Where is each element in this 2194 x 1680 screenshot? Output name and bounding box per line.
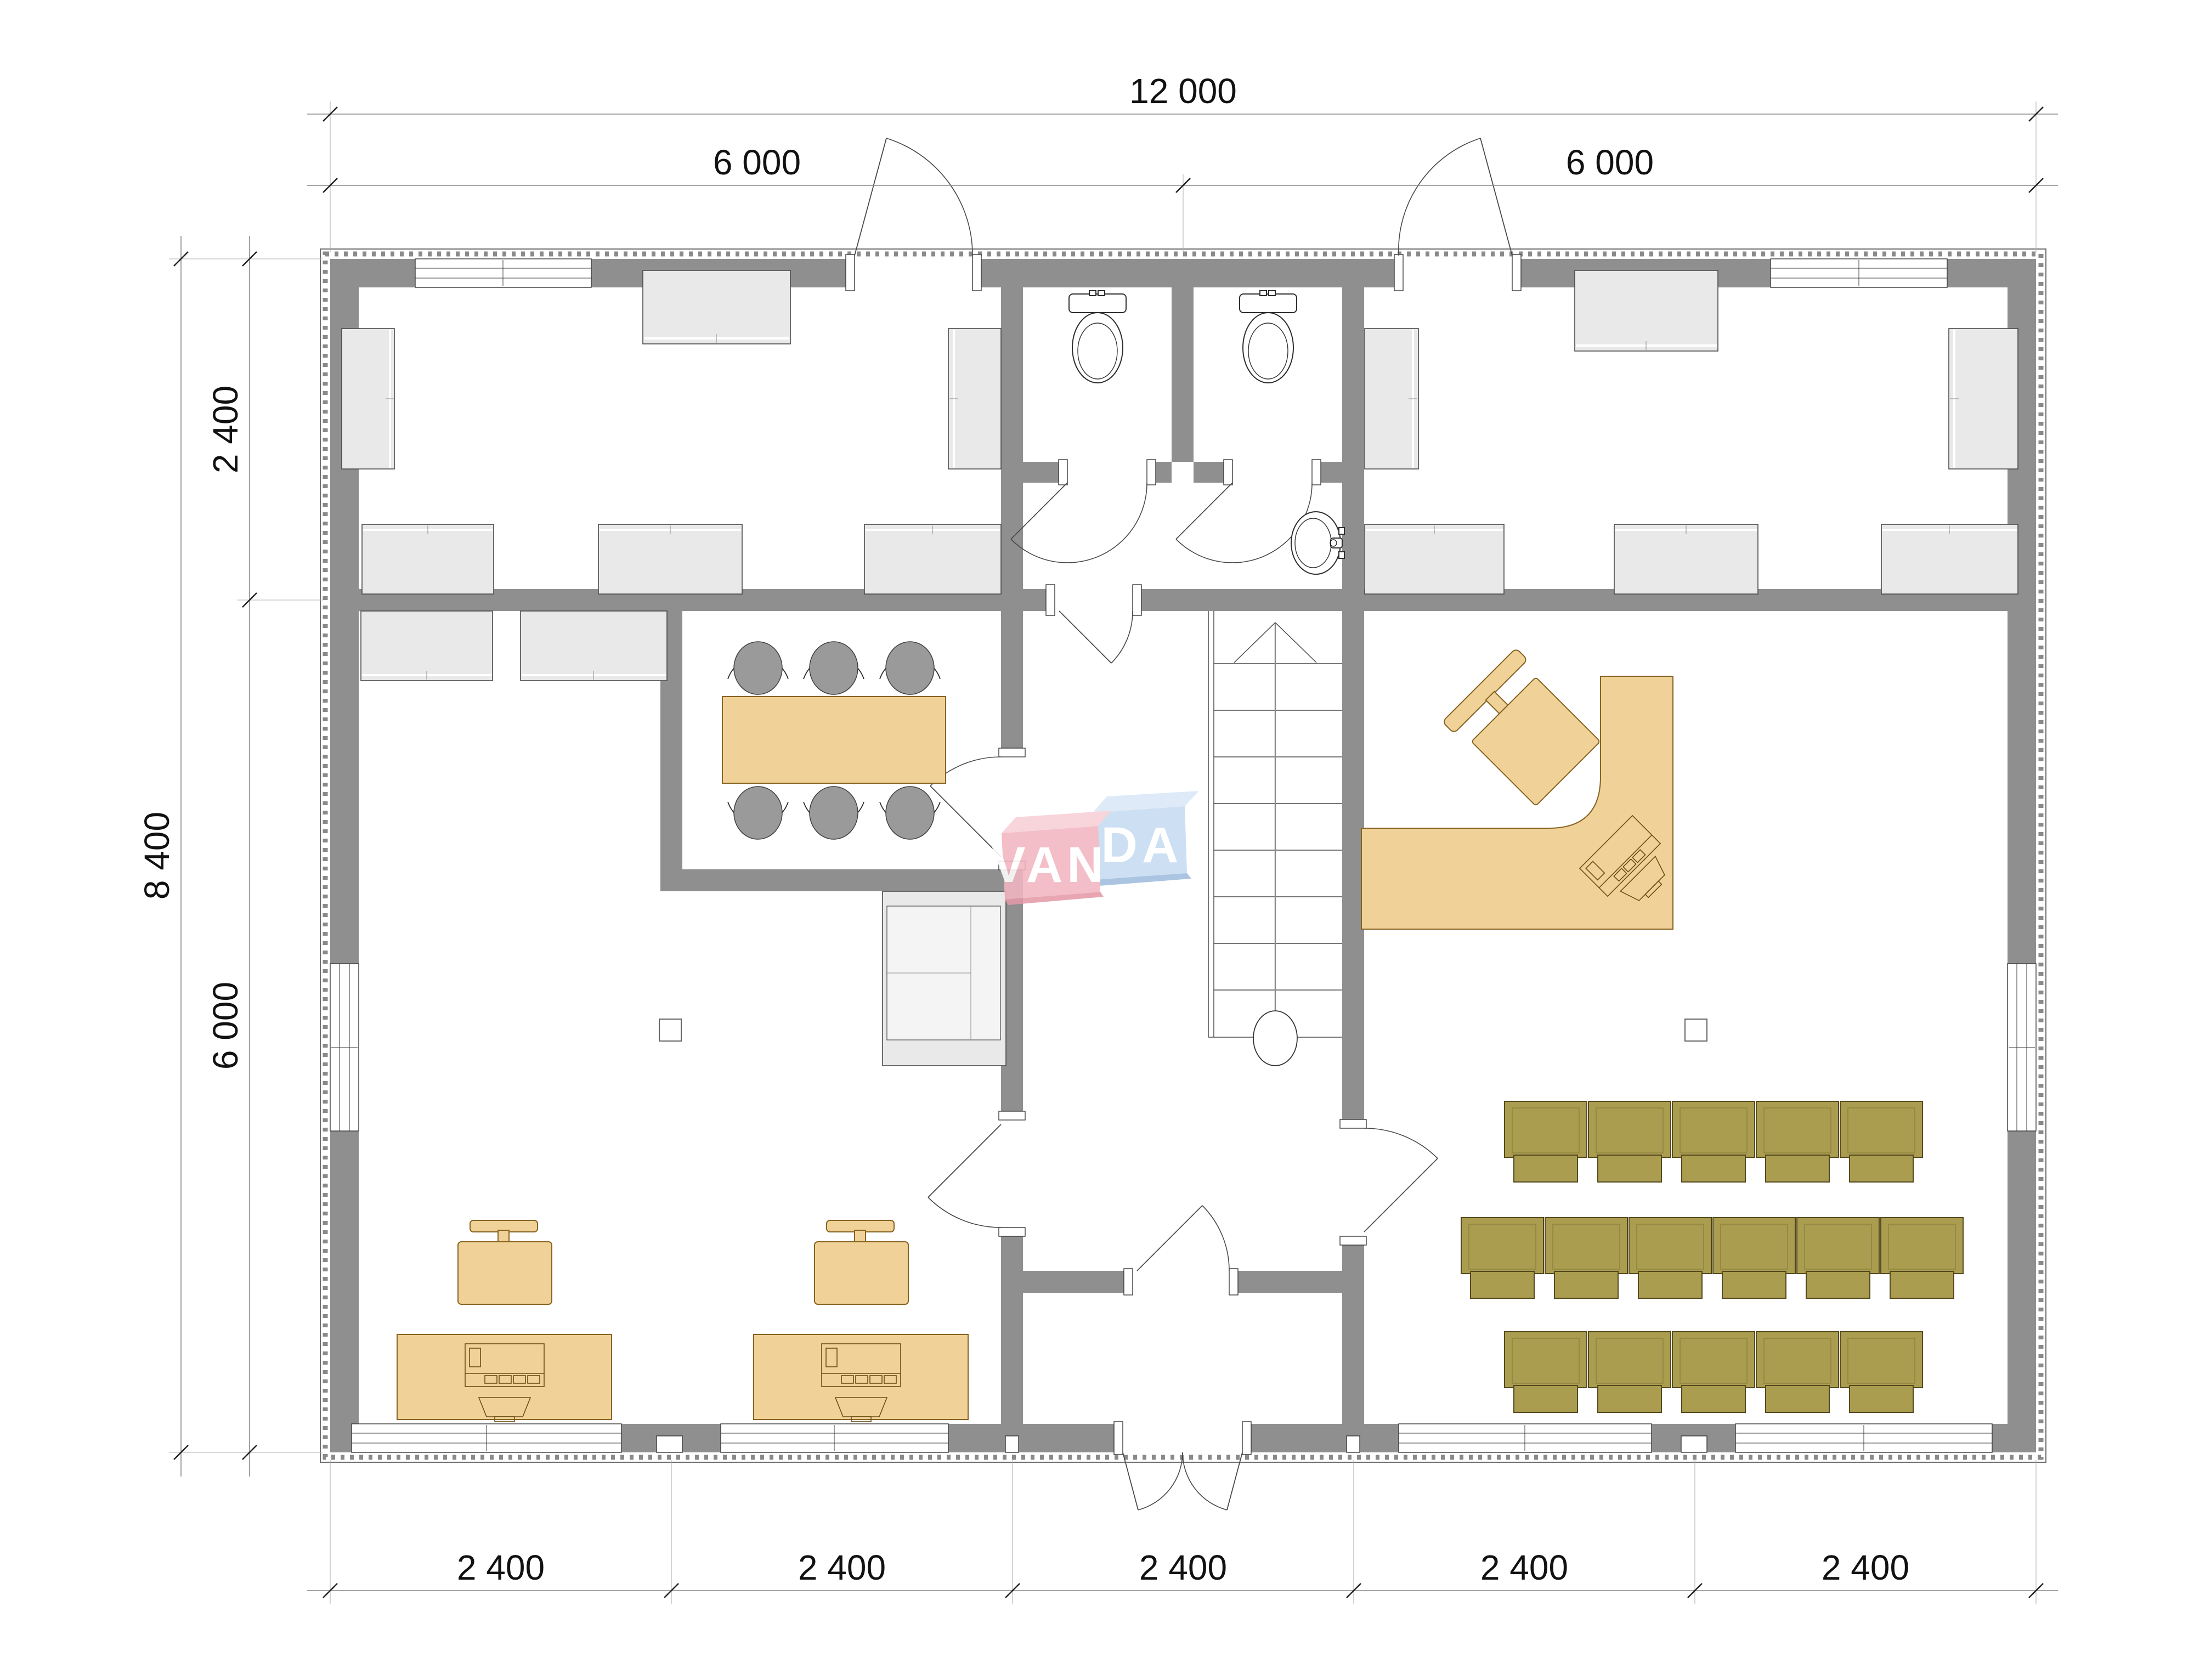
cabinet-tr-bottom-3: [1881, 524, 2018, 594]
workstations: [397, 1220, 968, 1422]
floor-plan-page: VAN DA 12 000 6 000 6 000: [0, 0, 2194, 1680]
wall-toilet-front-3: [1194, 462, 1228, 483]
theater-seat: [1505, 1332, 1587, 1412]
dimension-bottom-segments: 2 400 2 400 2 400 2 400 2 400: [307, 1548, 2058, 1598]
reception: [1361, 648, 1681, 929]
wall-vestibule-left: [1023, 1271, 1133, 1293]
floor-box-symbol-right: [1685, 1019, 1707, 1041]
seat-row-1: [1505, 1101, 1922, 1182]
stairs: [1208, 611, 1342, 1066]
theater-seat: [1672, 1101, 1755, 1182]
dim-label-6000-left: 6 000: [713, 143, 801, 182]
theater-seat: [1756, 1332, 1839, 1412]
dim-label-b2: 2 400: [798, 1548, 886, 1587]
theater-seat: [1797, 1218, 1879, 1298]
door-vestibule-inner: [1124, 1206, 1238, 1295]
meeting-table: [722, 697, 946, 783]
theater-seating: [1461, 1101, 1963, 1412]
watermark-text-right: DA: [1101, 817, 1183, 873]
cabinet-tr-rightwall: [1949, 329, 2018, 469]
toilet-icon-left: [1069, 291, 1126, 383]
theater-seat: [1629, 1218, 1711, 1298]
dim-label-b5: 2 400: [1822, 1548, 1909, 1587]
wall-hall-east-lower: [1342, 1236, 1364, 1424]
cabinet-tr-topwall: [1575, 270, 1718, 351]
sanitary-fixtures: [1069, 291, 1344, 574]
wall-toilet-east: [1342, 287, 1364, 589]
theater-seat: [1588, 1332, 1671, 1412]
window-left: [330, 964, 359, 1131]
meeting-chairs-top: [728, 642, 940, 694]
wall-toilet-middle: [1172, 287, 1194, 462]
floor-box-symbol-left: [659, 1019, 681, 1041]
theater-seat: [1756, 1101, 1839, 1182]
cabinet-tr-leftwall: [1365, 329, 1418, 469]
window-bottom-4: [1735, 1424, 1992, 1452]
floor-plan-drawing: VAN DA 12 000 6 000 6 000: [0, 0, 2194, 1680]
door-hall-to-right-room: [1340, 1119, 1438, 1245]
theater-seat: [1461, 1218, 1543, 1298]
theater-seat: [1505, 1101, 1587, 1182]
dimension-top-halves: 6 000 6 000: [307, 143, 2058, 193]
cabinet-tall-below-meeting: [883, 891, 1006, 1066]
dimension-left-total: 8 400: [137, 236, 188, 1477]
dim-label-b4: 2 400: [1480, 1548, 1568, 1587]
dim-label-2400-left: 2 400: [206, 386, 245, 473]
window-bottom-3: [1399, 1424, 1652, 1452]
door-opening-top-right: [1403, 259, 1512, 287]
desk-chair-seat: [458, 1242, 552, 1304]
cabinet-tl-topwall: [643, 270, 790, 344]
dim-label-6000-left-lower: 6 000: [206, 982, 245, 1070]
cabinet-tl-leftwall: [342, 329, 394, 469]
cabinet-tl-bottom-1: [362, 524, 494, 594]
dim-label-6000-right: 6 000: [1566, 143, 1654, 182]
window-top-right: [1771, 259, 1947, 287]
desk: [397, 1334, 612, 1419]
seat-row-2: [1461, 1218, 1963, 1298]
dimension-top-total: 12 000: [307, 71, 2058, 121]
wall-meeting-south: [660, 869, 1001, 891]
pier-notch-right: [1681, 1436, 1707, 1452]
theater-seat: [1545, 1218, 1627, 1298]
junction-notch-right: [1347, 1436, 1360, 1452]
theater-seat: [1840, 1101, 1922, 1182]
window-bottom-1: [352, 1424, 621, 1452]
workstation-1: [397, 1220, 612, 1422]
entrance-opening: [1123, 1424, 1242, 1452]
workstation-2: [754, 1220, 968, 1422]
watermark-text-left: VAN: [992, 837, 1107, 893]
theater-seat: [1588, 1101, 1671, 1182]
toilet-icon-right: [1240, 291, 1297, 383]
stair-direction-arrow: [1234, 623, 1275, 663]
pier-notch-left: [657, 1436, 682, 1452]
stair-newel: [1253, 1011, 1297, 1066]
sink-icon: [1291, 512, 1344, 574]
cabinet-tl-rightwall: [948, 329, 1001, 469]
seat-row-3: [1505, 1332, 1922, 1412]
wall-main-horizontal-right: [1133, 589, 2008, 611]
cabinet-ll-north-1: [361, 611, 493, 681]
cabinet-tl-bottom-3: [864, 524, 1001, 594]
cabinet-tl-bottom-2: [598, 524, 742, 594]
theater-seat: [1672, 1332, 1755, 1412]
wall-toilet-front-1: [1023, 462, 1063, 483]
window-bottom-2: [721, 1424, 948, 1452]
door-lobby-to-hall: [1046, 585, 1141, 663]
cabinet-tr-bottom-1: [1365, 524, 1504, 594]
wall-hall-west-lower: [1001, 1228, 1023, 1424]
meeting-chairs-bottom: [728, 787, 940, 839]
window-right: [2008, 964, 2036, 1131]
dim-label-8400: 8 400: [137, 812, 177, 900]
wall-hall-west-upper: [1001, 611, 1023, 757]
dim-label-b1: 2 400: [457, 1548, 545, 1587]
cabinet-ll-north-2: [521, 611, 667, 681]
watermark-logo: VAN DA: [992, 791, 1199, 905]
cabinet-tr-bottom-2: [1614, 524, 1758, 594]
door-hall-to-left-room: [928, 1111, 1025, 1236]
door-opening-top-left: [855, 259, 972, 287]
meeting-room-furniture: [722, 642, 946, 839]
window-top-left: [415, 259, 591, 287]
theater-seat: [1881, 1218, 1963, 1298]
theater-seat: [1713, 1218, 1795, 1298]
wall-vestibule-right: [1229, 1271, 1342, 1293]
dim-label-12000: 12 000: [1129, 71, 1237, 111]
wall-toilet-west: [1001, 287, 1023, 589]
dim-label-b3: 2 400: [1139, 1548, 1227, 1587]
junction-notch-left: [1005, 1436, 1019, 1452]
theater-seat: [1840, 1332, 1922, 1412]
office-chair: [1443, 648, 1605, 811]
dimension-left-segments: 2 400 6 000: [206, 236, 257, 1477]
